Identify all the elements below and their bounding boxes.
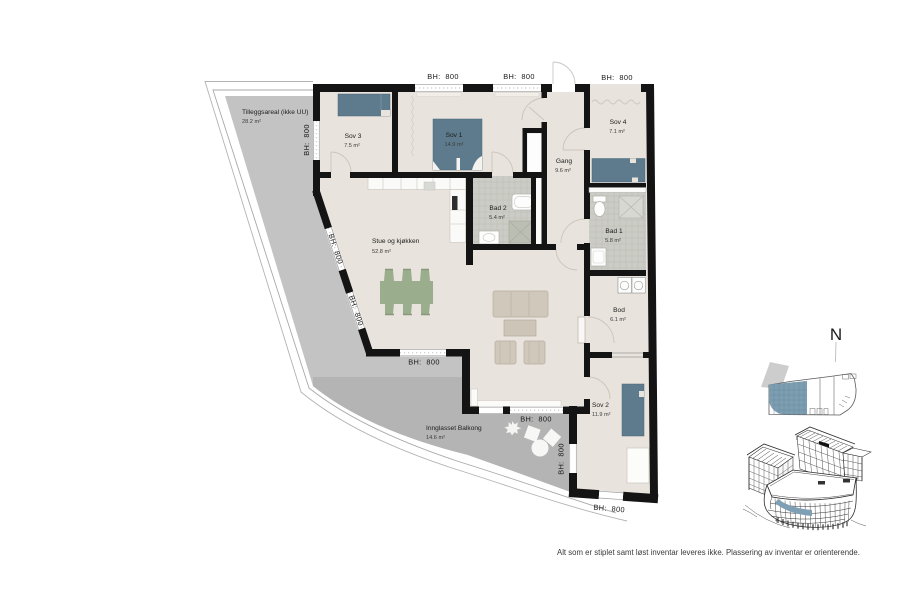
svg-text:BH: 800: BH: 800: [503, 72, 535, 81]
svg-text:BH: 800: BH: 800: [601, 73, 633, 82]
svg-text:BH: 800: BH: 800: [302, 124, 311, 156]
svg-text:Sov 4: Sov 4: [610, 119, 627, 126]
svg-text:7.5 m²: 7.5 m²: [344, 143, 360, 149]
svg-text:BH: 800: BH: 800: [408, 358, 440, 367]
svg-text:Tilleggsareal (ikke UU): Tilleggsareal (ikke UU): [242, 109, 308, 116]
svg-text:BH: 800: BH: 800: [520, 415, 552, 424]
svg-text:N: N: [830, 325, 842, 344]
svg-text:Alt som er stiplet samt løst i: Alt som er stiplet samt løst inventar le…: [557, 548, 860, 557]
svg-text:14.6 m²: 14.6 m²: [426, 435, 445, 441]
svg-text:28.2 m²: 28.2 m²: [242, 119, 261, 125]
svg-text:9.6 m²: 9.6 m²: [555, 168, 571, 174]
svg-text:Sov 2: Sov 2: [592, 402, 609, 409]
svg-text:52.8 m²: 52.8 m²: [372, 249, 391, 255]
svg-text:BH: 800: BH: 800: [557, 443, 566, 475]
svg-text:Stue og kjøkken: Stue og kjøkken: [372, 238, 420, 245]
svg-text:11.9 m²: 11.9 m²: [592, 412, 611, 418]
svg-text:Sov 3: Sov 3: [345, 133, 362, 140]
svg-text:7.1 m²: 7.1 m²: [609, 129, 625, 135]
svg-text:6.1 m²: 6.1 m²: [610, 317, 626, 323]
svg-text:14.9 m²: 14.9 m²: [445, 142, 464, 148]
svg-text:Sov 1: Sov 1: [446, 132, 463, 139]
svg-text:Bad 2: Bad 2: [489, 205, 507, 212]
svg-text:5.8 m²: 5.8 m²: [605, 238, 621, 244]
svg-text:Bad 1: Bad 1: [605, 228, 623, 235]
svg-text:5.4 m²: 5.4 m²: [489, 215, 505, 221]
svg-text:BH: 800: BH: 800: [427, 72, 459, 81]
svg-text:Innglasset Balkong: Innglasset Balkong: [426, 425, 482, 432]
svg-text:Bod: Bod: [613, 307, 625, 314]
svg-text:Gang: Gang: [556, 158, 572, 165]
